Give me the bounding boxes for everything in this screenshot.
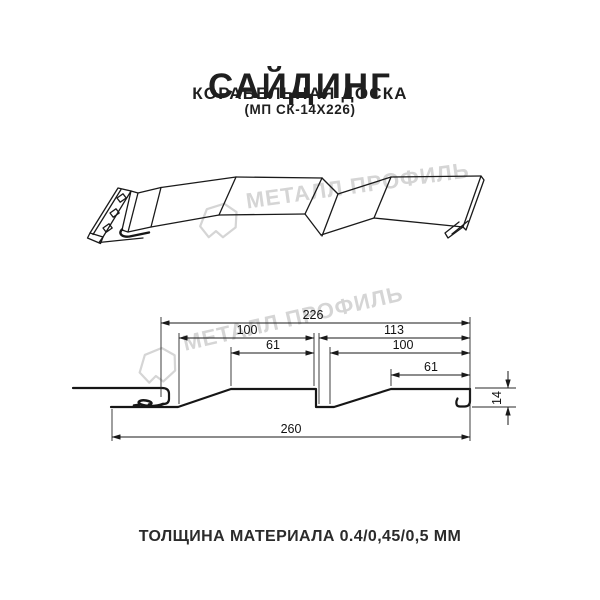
dim-label-226: 226 [303,308,324,322]
dim-label-61-left: 61 [266,338,280,352]
dimension-lines [112,323,508,437]
extension-lines [112,317,516,441]
dim-label-61-right: 61 [424,360,438,374]
section-profile-outline [73,388,470,407]
dim-label-100-right: 100 [393,338,414,352]
dim-label-100-left: 100 [237,323,258,337]
dimension-labels: 226 100 61 113 100 61 260 14 [237,308,504,436]
dim-label-113: 113 [384,323,404,337]
dim-label-14: 14 [490,391,504,405]
profile-section-drawing: 226 100 61 113 100 61 260 14 [0,0,600,600]
dim-label-260: 260 [281,422,302,436]
